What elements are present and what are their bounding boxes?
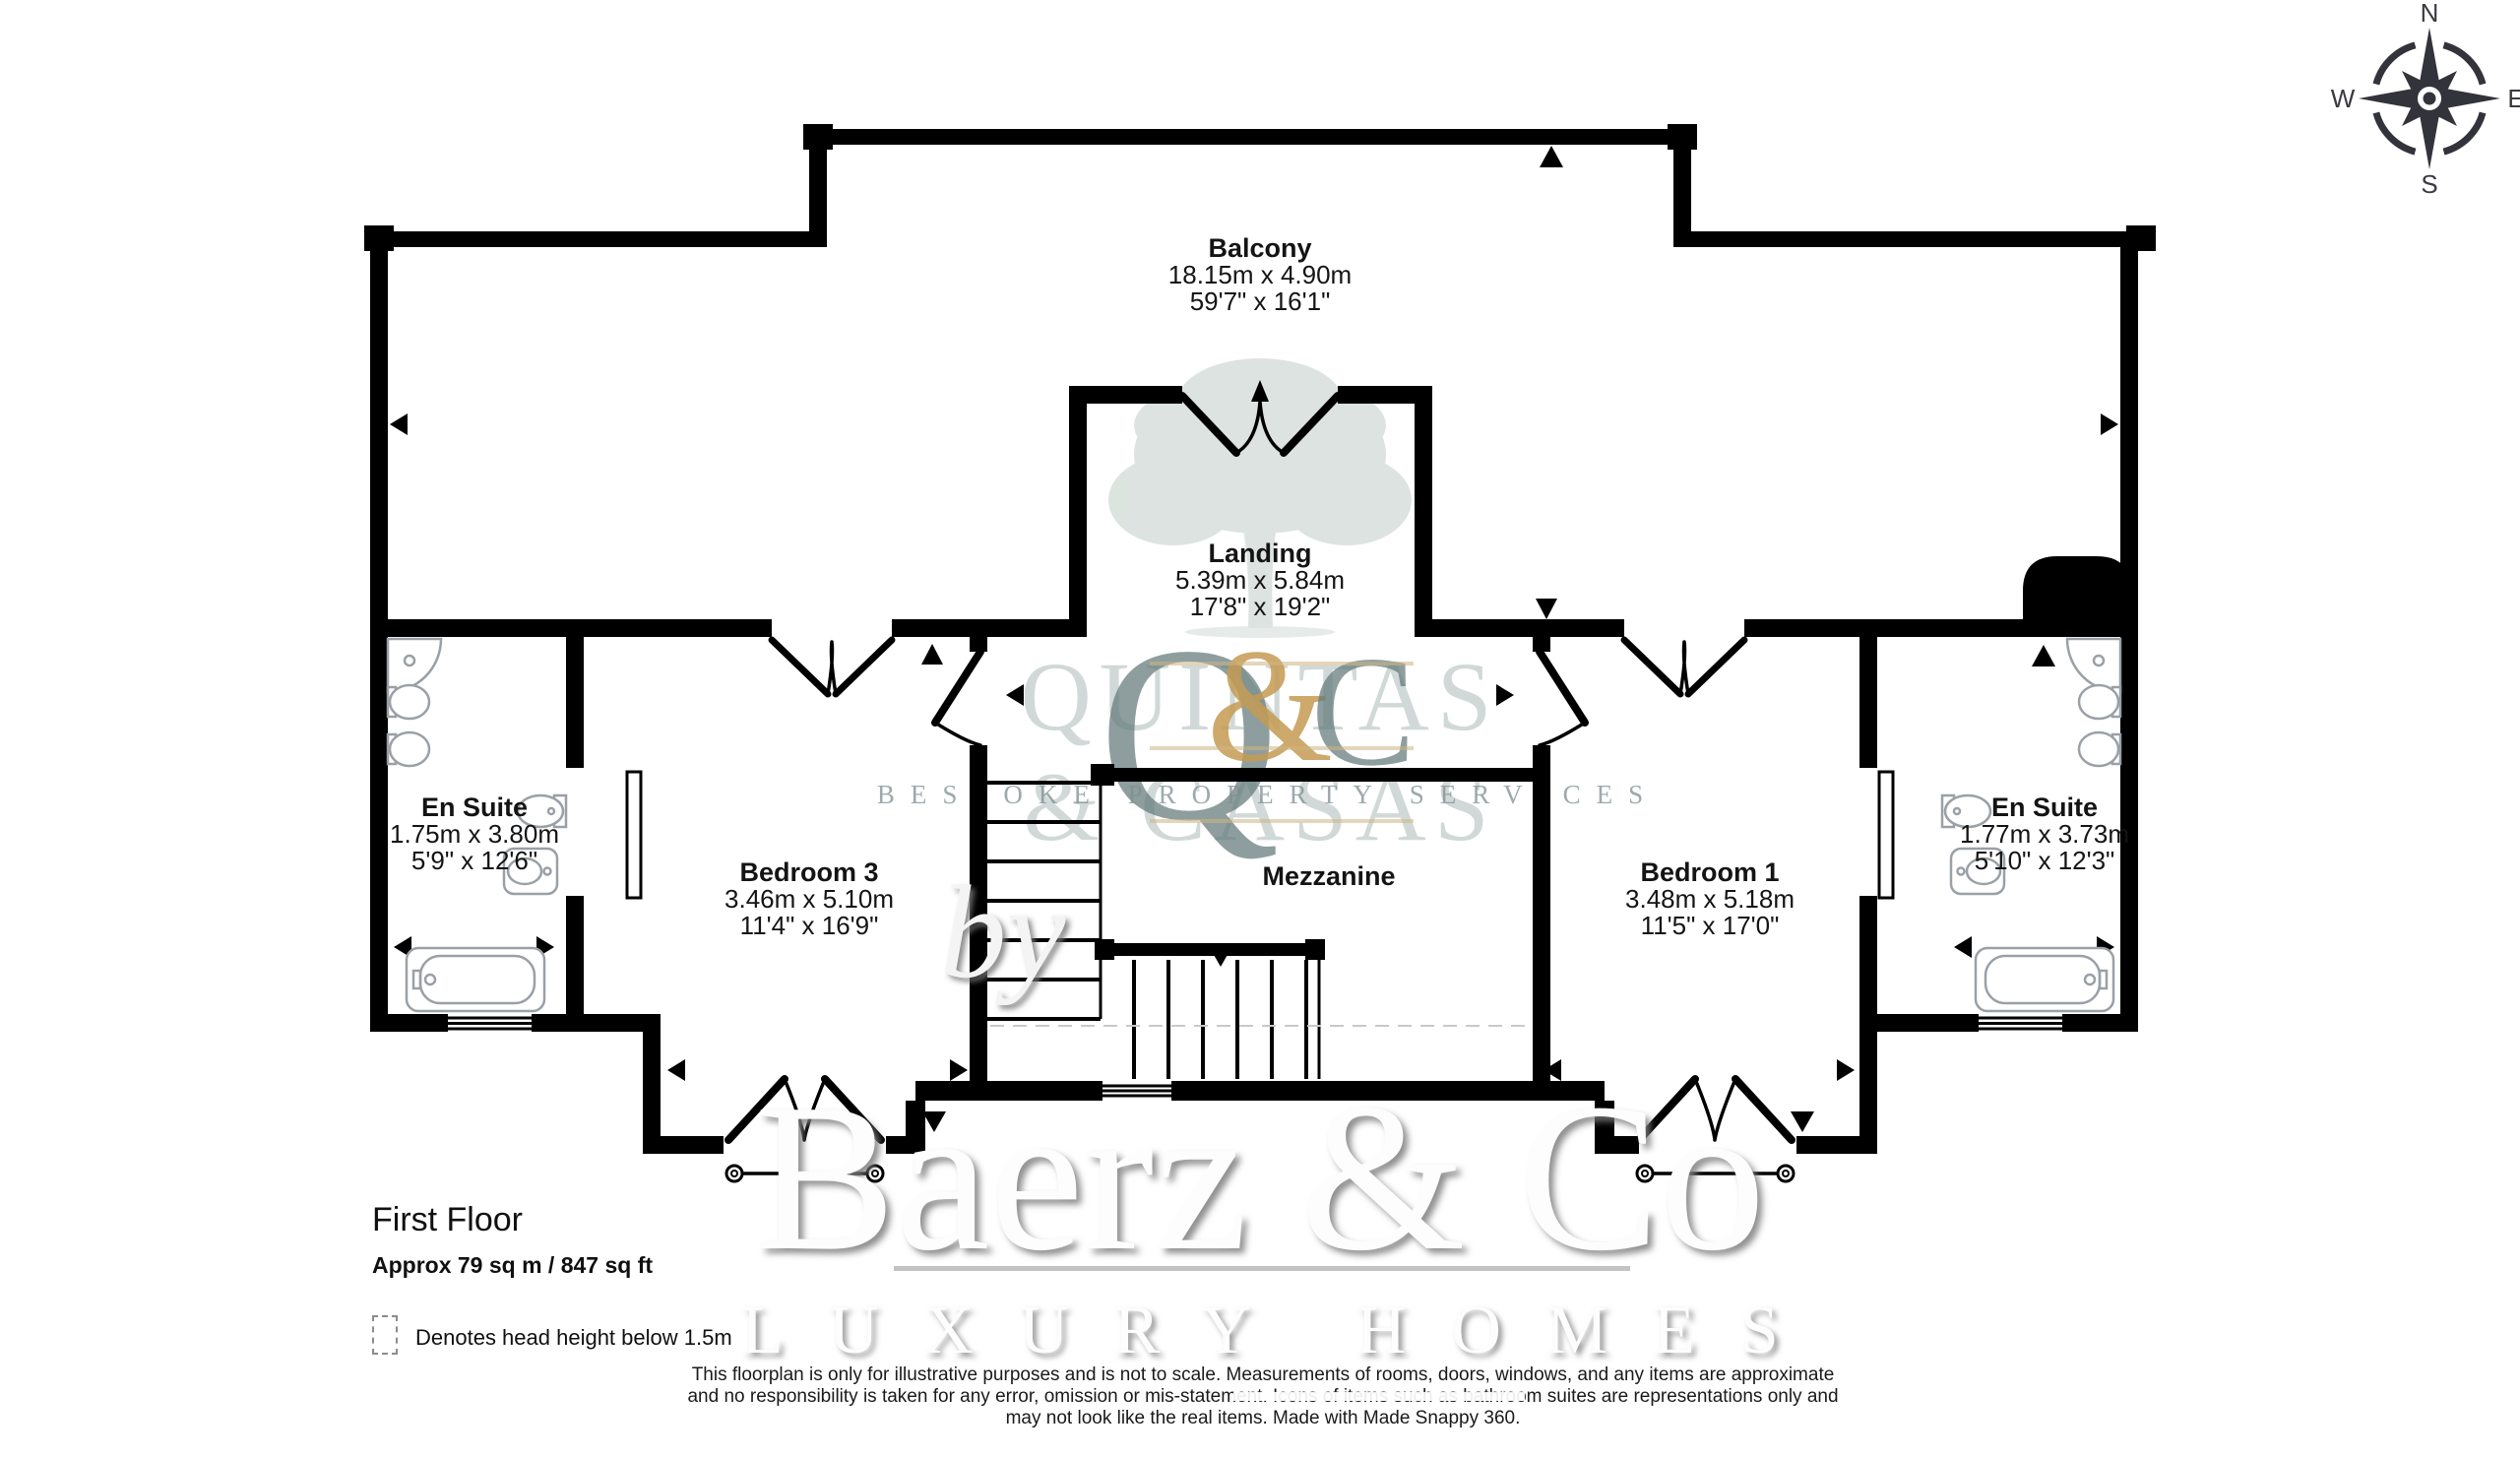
room-dims-metric: 1.75m x 3.80m <box>390 821 559 848</box>
wall-basin-icon <box>388 732 429 766</box>
room-dims-metric: 1.77m x 3.73m <box>1960 821 2129 848</box>
room-name: Bedroom 1 <box>1625 858 1795 886</box>
watermark-monogram-c: C <box>1311 620 1417 802</box>
watermark-gold-rule <box>1150 746 1414 750</box>
balcony-door-icon <box>1182 380 1338 453</box>
chimney-breast <box>2023 556 2131 637</box>
room-name: Landing <box>1175 539 1345 567</box>
room-label-landing: Landing 5.39m x 5.84m 17'8" x 19'2" <box>1175 539 1345 620</box>
watermark-by: by <box>940 856 1065 1009</box>
head-height-legend-label: Denotes head height below 1.5m <box>415 1325 732 1351</box>
room-label-bedroom3: Bedroom 3 3.46m x 5.10m 11'4" x 16'9" <box>724 858 894 939</box>
room-dims-imperial: 5'10" x 12'3" <box>1960 848 2129 874</box>
disclaimer-line-1: This floorplan is only for illustrative … <box>692 1364 1835 1386</box>
floorplan-page: QUINTAS & CASAS Q & C BESPOKE PROPERTY S… <box>0 0 2520 1458</box>
watermark-gold-rule <box>1150 662 1414 666</box>
room-name: Bedroom 3 <box>724 858 894 886</box>
room-dims-imperial: 11'5" x 17'0" <box>1625 913 1795 939</box>
room-name: Balcony <box>1168 234 1352 262</box>
room-label-mezzanine: Mezzanine <box>1262 862 1395 890</box>
watermark-gold-rule <box>1150 819 1414 823</box>
room-dims-imperial: 17'8" x 19'2" <box>1175 594 1345 620</box>
wall-basin-icon <box>388 685 429 719</box>
watermark-agency-tagline: BESPOKE PROPERTY SERVICES <box>877 780 1659 810</box>
room-label-ensuite-right: En Suite 1.77m x 3.73m 5'10" x 12'3" <box>1960 793 2129 874</box>
wall-basin-icon <box>2079 732 2120 766</box>
room-dims-metric: 3.48m x 5.18m <box>1625 886 1795 913</box>
room-name: En Suite <box>1960 793 2129 821</box>
bathtub-icon <box>1976 948 2113 1011</box>
room-dims-metric: 5.39m x 5.84m <box>1175 567 1345 594</box>
head-height-legend-icon <box>372 1315 398 1355</box>
watermark-brand-rule <box>894 1266 1630 1271</box>
compass-west-label: W <box>2331 84 2356 113</box>
room-name: Mezzanine <box>1262 862 1395 890</box>
compass-east-label: E <box>2507 84 2520 113</box>
watermark-brand: Baerz & Co <box>755 1055 1766 1300</box>
watermark-white-band <box>1233 1392 1525 1401</box>
room-label-bedroom1: Bedroom 1 3.48m x 5.18m 11'5" x 17'0" <box>1625 858 1795 939</box>
room-dims-imperial: 5'9" x 12'6" <box>390 848 559 874</box>
room-label-balcony: Balcony 18.15m x 4.90m 59'7" x 16'1" <box>1168 234 1352 315</box>
room-label-ensuite-left: En Suite 1.75m x 3.80m 5'9" x 12'6" <box>390 793 559 874</box>
watermark-brand-tagline: LUXURY HOMES <box>696 1292 1824 1370</box>
bathtub-icon <box>407 948 544 1011</box>
room-dims-imperial: 59'7" x 16'1" <box>1168 288 1352 315</box>
compass-icon: N E S W <box>2331 0 2520 199</box>
room-dims-metric: 3.46m x 5.10m <box>724 886 894 913</box>
floor-area: Approx 79 sq m / 847 sq ft <box>372 1252 653 1279</box>
wall-basin-icon <box>2079 685 2120 719</box>
compass-south-label: S <box>2421 169 2437 199</box>
room-dims-imperial: 11'4" x 16'9" <box>724 913 894 939</box>
floor-title: First Floor <box>372 1201 523 1239</box>
corner-basin-icon <box>388 639 441 692</box>
disclaimer-line-3: may not look like the real items. Made w… <box>1006 1408 1521 1429</box>
compass-north-label: N <box>2421 0 2439 28</box>
room-dims-metric: 18.15m x 4.90m <box>1168 262 1352 288</box>
corner-basin-icon <box>2067 639 2120 692</box>
room-name: En Suite <box>390 793 559 821</box>
